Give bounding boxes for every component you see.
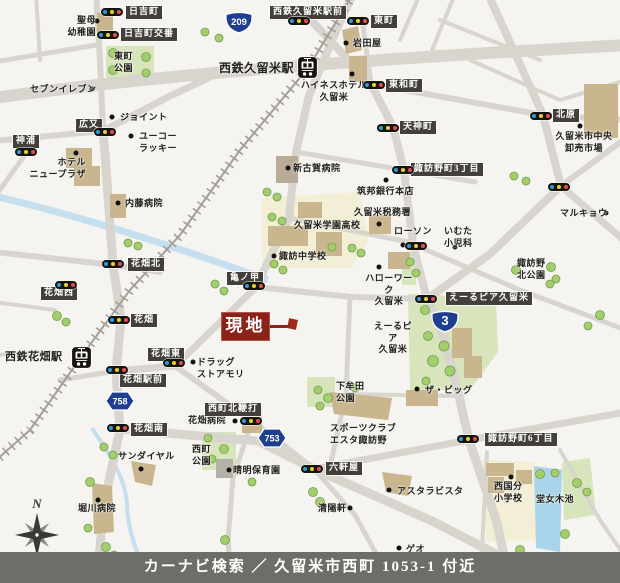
train-station-icon	[71, 346, 92, 374]
signal-lamp-icon	[123, 426, 127, 430]
signal-lamp-icon	[363, 19, 367, 23]
tree-icon	[211, 280, 219, 288]
poi-label: ザ・ビッグ	[425, 385, 473, 397]
tree-icon	[248, 478, 256, 486]
tree-icon	[324, 394, 333, 403]
poi-dot-icon	[116, 201, 121, 206]
signal-lamp-icon	[24, 150, 28, 154]
poi-label: 諏訪中学校	[279, 251, 327, 263]
signal-lamp-icon	[116, 426, 120, 430]
traffic-signal-icon	[106, 366, 128, 374]
signal-name-plate: 神浦	[13, 135, 39, 148]
signal-lamp-icon	[401, 168, 405, 172]
tree-icon	[273, 193, 281, 201]
traffic-signal-icon	[377, 124, 399, 132]
poi-dot-icon	[350, 72, 355, 77]
signal-name-plate: 花畑南	[131, 423, 167, 436]
tree-icon	[445, 366, 455, 376]
svg-text:209: 209	[231, 17, 247, 28]
poi-dot-icon	[272, 254, 277, 259]
signal-name-plate: 日吉町交番	[121, 28, 177, 41]
signal-lamp-icon	[118, 262, 122, 266]
tree-icon	[84, 524, 92, 532]
tree-icon	[596, 311, 605, 320]
poi-label: ハローワーク 久留米	[364, 273, 414, 308]
poi-label: 内藤病院	[125, 198, 163, 210]
poi-label: 久留米税務署	[354, 207, 411, 219]
poi-dot-icon	[387, 488, 392, 493]
signal-lamp-icon	[245, 284, 249, 288]
signal-name-plate: 諏訪野町6丁目	[485, 433, 557, 446]
signal-lamp-icon	[310, 467, 314, 471]
tree-icon	[309, 488, 318, 497]
tree-icon	[134, 242, 142, 250]
poi-label: ジョイント	[120, 112, 168, 124]
signal-lamp-icon	[539, 114, 543, 118]
signal-lamp-icon	[421, 244, 425, 248]
signal-lamp-icon	[110, 130, 114, 134]
poi-label: 久留米市中央 卸売市場	[551, 131, 617, 154]
poi-label: スポーツクラブ エスタ諏訪野	[330, 423, 396, 446]
traffic-signal-icon	[55, 281, 77, 289]
poi-label: ユーコー ラッキー	[139, 131, 177, 154]
signal-name-plate: 諏訪野町3丁目	[411, 163, 483, 176]
signal-lamp-icon	[103, 130, 107, 134]
svg-text:753: 753	[264, 434, 279, 444]
poi-label: 新古賀病院	[293, 163, 341, 175]
traffic-signal-icon	[530, 112, 552, 120]
poi-label: マルキョウ	[560, 208, 608, 220]
signal-lamp-icon	[57, 283, 61, 287]
signal-lamp-icon	[414, 244, 418, 248]
poi-label: 西鉄花畑駅	[5, 350, 63, 364]
traffic-signal-icon	[457, 435, 479, 443]
traffic-signal-icon	[108, 316, 130, 324]
signal-lamp-icon	[393, 126, 397, 130]
signal-lamp-icon	[431, 297, 435, 301]
poi-label: 花畑病院	[188, 415, 226, 427]
signal-lamp-icon	[110, 318, 114, 322]
signal-name-plate: 北原	[553, 109, 579, 122]
tree-icon	[422, 377, 430, 385]
route-3-shield-icon: 3	[430, 309, 460, 338]
signal-lamp-icon	[117, 318, 121, 322]
signal-lamp-icon	[356, 19, 360, 23]
tree-icon	[124, 239, 132, 247]
tree-icon	[421, 306, 430, 315]
signal-lamp-icon	[124, 318, 128, 322]
signal-lamp-icon	[417, 297, 421, 301]
traffic-signal-icon	[15, 148, 37, 156]
poi-label: 聖母 幼稚園	[44, 15, 96, 38]
signal-name-plate: えーるピア久留米	[446, 292, 532, 305]
traffic-signal-icon	[101, 8, 123, 16]
signal-lamp-icon	[249, 419, 253, 423]
traffic-signal-icon	[107, 424, 129, 432]
location-map-page: 現地 N 聖母 幼稚園セブンイレブンジョイントユーコー ラッキーホテル ニュープ…	[0, 0, 620, 583]
tree-icon	[215, 34, 223, 42]
svg-text:3: 3	[441, 313, 448, 328]
tree-icon	[561, 530, 570, 539]
poi-label: えーるピア 久留米	[370, 321, 416, 356]
signal-lamp-icon	[106, 33, 110, 37]
poi-dot-icon	[384, 178, 389, 183]
signal-lamp-icon	[111, 262, 115, 266]
signal-lamp-icon	[110, 10, 114, 14]
signal-name-plate: 天神町	[400, 121, 436, 134]
signal-name-plate: 花畑北	[128, 258, 164, 271]
poi-dot-icon	[96, 498, 101, 503]
signal-name-plate: 六軒屋	[326, 462, 362, 475]
tree-icon	[551, 469, 559, 477]
signal-lamp-icon	[99, 33, 103, 37]
tree-icon	[100, 443, 108, 451]
poi-dot-icon	[578, 124, 583, 129]
signal-name-plate: 花畑駅前	[120, 374, 166, 387]
poi-dot-icon	[377, 222, 382, 227]
tree-icon	[86, 478, 95, 487]
signal-lamp-icon	[365, 83, 369, 87]
signal-name-plate: 東町	[371, 15, 397, 28]
poi-label: 堂女木池	[536, 494, 574, 506]
tree-icon	[406, 258, 414, 266]
tree-icon	[583, 488, 591, 496]
map-canvas: 現地 N 聖母 幼稚園セブンイレブンジョイントユーコー ラッキーホテル ニュープ…	[0, 0, 620, 552]
traffic-signal-icon	[392, 166, 414, 174]
poi-label: 西町 公園	[192, 444, 211, 467]
address-bar: カーナビ検索 ／ 久留米市西町 1053-1 付近	[0, 552, 620, 583]
poi-label: 下牟田 公園	[336, 381, 365, 404]
signal-lamp-icon	[473, 437, 477, 441]
poi-label: 清陽軒	[318, 503, 347, 515]
poi-label: ローソン	[394, 226, 432, 238]
traffic-signal-icon	[548, 183, 570, 191]
signal-lamp-icon	[532, 114, 536, 118]
tree-icon	[546, 280, 554, 288]
route-753-shield-icon: 753	[257, 428, 287, 453]
signal-lamp-icon	[17, 150, 21, 154]
tree-icon	[348, 244, 356, 252]
traffic-signal-icon	[163, 359, 185, 367]
signal-lamp-icon	[103, 10, 107, 14]
poi-label: 晴明保育園	[233, 465, 281, 477]
poi-label: 東町 公園	[114, 51, 133, 74]
tree-icon	[357, 249, 365, 257]
signal-lamp-icon	[372, 83, 376, 87]
poi-dot-icon	[377, 265, 382, 270]
traffic-signal-icon	[415, 295, 437, 303]
signal-lamp-icon	[31, 150, 35, 154]
signal-lamp-icon	[165, 361, 169, 365]
traffic-signal-icon	[347, 17, 369, 25]
signal-lamp-icon	[290, 19, 294, 23]
poi-dot-icon	[227, 468, 232, 473]
signal-lamp-icon	[109, 426, 113, 430]
tree-icon	[584, 322, 592, 330]
signal-name-plate: 花畑	[131, 314, 157, 327]
signal-lamp-icon	[259, 284, 263, 288]
signal-lamp-icon	[172, 361, 176, 365]
poi-label: 堀川病院	[78, 503, 116, 515]
signal-lamp-icon	[115, 368, 119, 372]
tree-icon	[201, 28, 209, 36]
signal-lamp-icon	[379, 126, 383, 130]
signal-lamp-icon	[179, 361, 183, 365]
signal-lamp-icon	[122, 368, 126, 372]
poi-dot-icon	[397, 546, 402, 551]
signal-lamp-icon	[394, 168, 398, 172]
poi-dot-icon	[509, 475, 514, 480]
poi-label: セブンイレブン	[30, 84, 97, 96]
poi-label: ホテル ニュープラザ	[28, 157, 86, 180]
poi-label: ドラッグ ストアモリ	[197, 357, 245, 380]
tree-icon	[510, 172, 518, 180]
signal-lamp-icon	[297, 19, 301, 23]
poi-dot-icon	[129, 134, 134, 139]
tree-icon	[522, 177, 530, 185]
poi-label: 諏訪野 北公園	[517, 258, 546, 281]
tree-icon	[62, 318, 70, 326]
tree-icon	[102, 543, 111, 552]
tree-icon	[204, 434, 212, 442]
signal-lamp-icon	[557, 185, 561, 189]
car-navi-search-text: カーナビ検索 ／ 久留米市西町 1053-1 付近	[144, 559, 477, 575]
signal-lamp-icon	[108, 368, 112, 372]
signal-lamp-icon	[71, 283, 75, 287]
tree-icon	[314, 386, 322, 394]
tree-icon	[428, 356, 439, 367]
signal-lamp-icon	[407, 244, 411, 248]
traffic-signal-icon	[97, 31, 119, 39]
signal-lamp-icon	[242, 419, 246, 423]
poi-dot-icon	[415, 387, 420, 392]
signal-lamp-icon	[104, 262, 108, 266]
tree-icon	[573, 479, 582, 488]
signal-lamp-icon	[303, 467, 307, 471]
signal-name-plate: 西町北鞭打	[205, 403, 261, 416]
svg-text:758: 758	[112, 397, 127, 407]
tree-icon	[263, 188, 271, 196]
route-209-shield-icon: 209	[224, 10, 254, 39]
tree-icon	[221, 536, 230, 545]
traffic-signal-icon	[102, 260, 124, 268]
signal-lamp-icon	[117, 10, 121, 14]
signal-lamp-icon	[304, 19, 308, 23]
signal-lamp-icon	[466, 437, 470, 441]
poi-label: アスタラビスタ	[397, 486, 464, 498]
traffic-signal-icon	[240, 417, 262, 425]
route-758-shield-icon: 758	[105, 391, 135, 416]
signal-lamp-icon	[96, 130, 100, 134]
traffic-signal-icon	[301, 465, 323, 473]
tree-icon	[220, 287, 228, 295]
poi-dot-icon	[348, 506, 353, 511]
poi-dot-icon	[191, 360, 196, 365]
signal-name-plate: 日吉町	[126, 6, 162, 19]
poi-label: いむた 小児科	[444, 226, 473, 249]
poi-dot-icon	[110, 115, 115, 120]
tree-icon	[278, 217, 286, 225]
signal-lamp-icon	[550, 185, 554, 189]
signal-lamp-icon	[317, 467, 321, 471]
signal-name-plate: 東和町	[386, 79, 422, 92]
poi-dot-icon	[286, 166, 291, 171]
tree-icon	[279, 266, 287, 274]
poi-label: 西鉄久留米駅	[219, 61, 294, 77]
signal-lamp-icon	[113, 33, 117, 37]
signal-lamp-icon	[459, 437, 463, 441]
tree-icon	[536, 470, 545, 479]
traffic-signal-icon	[243, 282, 265, 290]
signal-lamp-icon	[379, 83, 383, 87]
signal-lamp-icon	[252, 284, 256, 288]
poi-label: 久留米学園高校	[294, 220, 361, 232]
poi-dot-icon	[139, 467, 144, 472]
signal-lamp-icon	[64, 283, 68, 287]
traffic-signal-icon	[363, 81, 385, 89]
tree-icon	[268, 213, 276, 221]
traffic-signal-icon	[288, 17, 310, 25]
tree-icon	[220, 445, 229, 454]
tree-icon	[109, 451, 117, 459]
train-station-icon	[297, 56, 318, 84]
signal-lamp-icon	[349, 19, 353, 23]
tree-icon	[439, 341, 449, 351]
signal-lamp-icon	[546, 114, 550, 118]
tree-icon	[328, 243, 336, 251]
tree-icon	[142, 53, 151, 62]
signal-lamp-icon	[408, 168, 412, 172]
poi-dot-icon	[233, 419, 238, 424]
poi-dot-icon	[344, 41, 349, 46]
signal-lamp-icon	[256, 419, 260, 423]
signal-lamp-icon	[424, 297, 428, 301]
tree-icon	[53, 312, 62, 321]
tree-icon	[316, 402, 324, 410]
poi-label: サンダイヤル	[118, 451, 175, 463]
signal-lamp-icon	[564, 185, 568, 189]
site-marker: 現地	[221, 312, 270, 341]
tree-icon	[142, 69, 150, 77]
tree-icon	[270, 260, 278, 268]
poi-label: 岩田屋	[353, 38, 382, 50]
poi-label: 筑邦銀行本店	[357, 186, 414, 198]
tree-icon	[547, 263, 556, 272]
traffic-signal-icon	[405, 242, 427, 250]
compass-north-label: N	[14, 496, 60, 512]
traffic-signal-icon	[94, 128, 116, 136]
poi-dot-icon	[74, 151, 79, 156]
signal-lamp-icon	[386, 126, 390, 130]
poi-label: 西国分 小学校	[494, 481, 523, 504]
site-marker-label: 現地	[226, 316, 266, 335]
